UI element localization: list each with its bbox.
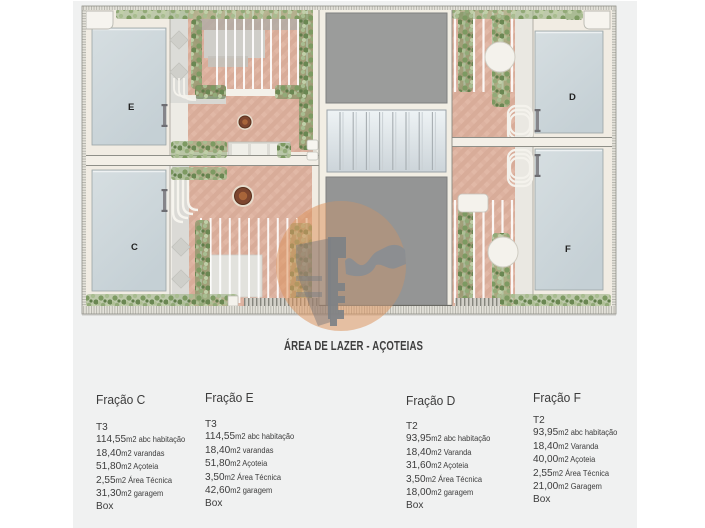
svg-text:D: D — [569, 92, 576, 103]
svg-text:E: E — [128, 102, 134, 113]
svg-text:C: C — [131, 242, 138, 253]
svg-text:F: F — [565, 244, 571, 255]
